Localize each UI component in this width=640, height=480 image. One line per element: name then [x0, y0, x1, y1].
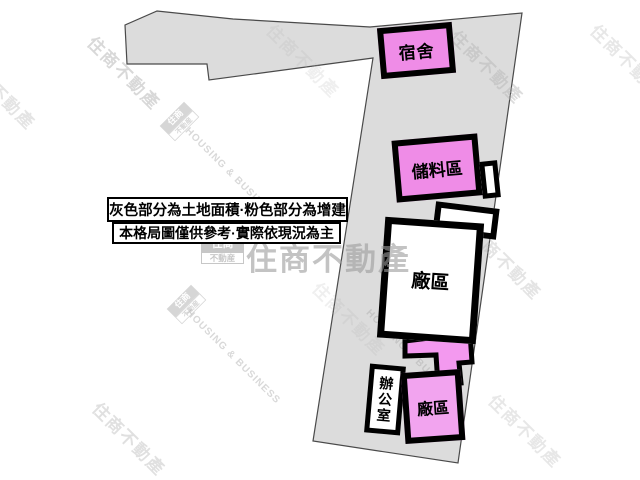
building-factory-main: 廠區 — [377, 217, 484, 345]
building-office-label: 辦公室 — [376, 375, 394, 424]
legend-note-color-meaning: 灰色部分為土地面積·粉色部分為增建 — [107, 197, 348, 222]
building-factory-main-label: 廠區 — [411, 266, 451, 296]
building-factory-annex: 廠區 — [401, 369, 466, 444]
building-office: 辦公室 — [364, 364, 406, 436]
building-storage-area: 儲料區 — [391, 133, 482, 202]
legend-note-disclaimer: 本格局圖僅供參考·實際依現況為主 — [112, 222, 341, 244]
small-structure-right — [479, 160, 501, 199]
land-layout-diagram: 住商不動產 住商不動產 住商不動產 住商不動產 住商不動產 住商不動產 住商不動… — [0, 0, 640, 480]
building-dormitory-label: 宿舍 — [397, 36, 435, 64]
building-factory-annex-label: 廠區 — [416, 393, 450, 419]
building-dormitory: 宿舍 — [377, 22, 456, 79]
building-storage-label: 儲料區 — [411, 153, 464, 182]
